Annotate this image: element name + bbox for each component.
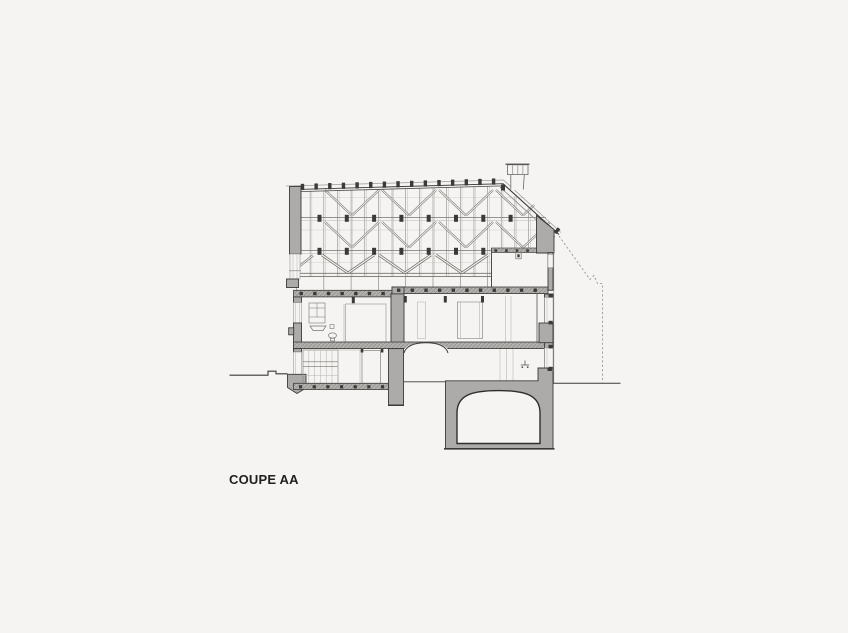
cellar-vault (444, 368, 555, 449)
central-wall-pier (391, 294, 404, 343)
attic-floor (294, 287, 549, 297)
bathroom-fixtures (309, 303, 337, 341)
adjacent-profile-dashed-line (559, 236, 603, 383)
glazed-partition (303, 350, 338, 383)
toilet (329, 333, 337, 338)
building-section-drawing (0, 0, 848, 633)
window-sill (289, 328, 294, 335)
drawing-sheet: COUPE AA (0, 0, 848, 633)
door (458, 302, 483, 339)
left-gable-wall (287, 187, 302, 288)
right-eaves-masonry (537, 216, 555, 254)
ground-pier (389, 349, 404, 405)
vault-arch-opening (457, 391, 540, 444)
closet (346, 304, 387, 342)
washbasin (310, 326, 326, 331)
terrain-line-left (230, 371, 288, 375)
drawing-title: COUPE AA (229, 472, 299, 487)
door (362, 351, 381, 384)
chimney (506, 164, 530, 190)
light-fixture-symbol (521, 361, 529, 369)
